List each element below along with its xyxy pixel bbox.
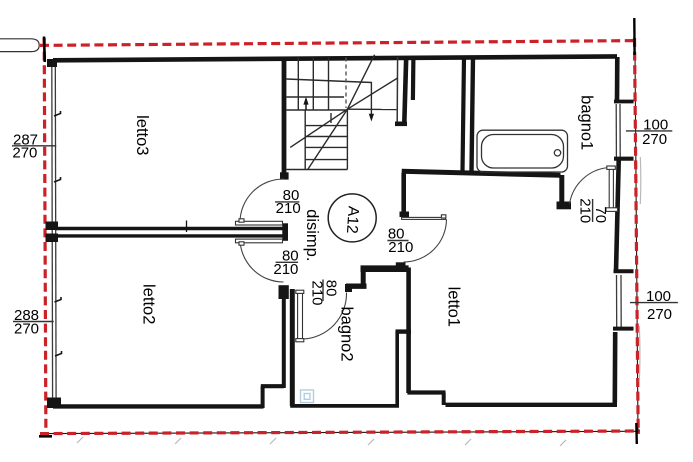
- svg-text:letto3: letto3: [133, 115, 151, 155]
- svg-text:270: 270: [642, 131, 667, 148]
- svg-text:210: 210: [577, 198, 594, 223]
- svg-text:bagno2: bagno2: [338, 306, 356, 361]
- svg-text:210: 210: [388, 239, 413, 256]
- svg-text:210: 210: [273, 261, 298, 278]
- svg-text:bagno1: bagno1: [578, 95, 596, 150]
- svg-text:210: 210: [276, 200, 301, 217]
- svg-text:letto1: letto1: [444, 287, 462, 327]
- svg-text:210: 210: [308, 280, 325, 305]
- svg-text:letto2: letto2: [139, 284, 157, 324]
- svg-text:270: 270: [12, 144, 37, 161]
- svg-text:270: 270: [14, 321, 39, 338]
- svg-text:270: 270: [647, 306, 672, 323]
- svg-text:disimp.: disimp.: [303, 209, 321, 261]
- svg-text:A12: A12: [343, 205, 362, 234]
